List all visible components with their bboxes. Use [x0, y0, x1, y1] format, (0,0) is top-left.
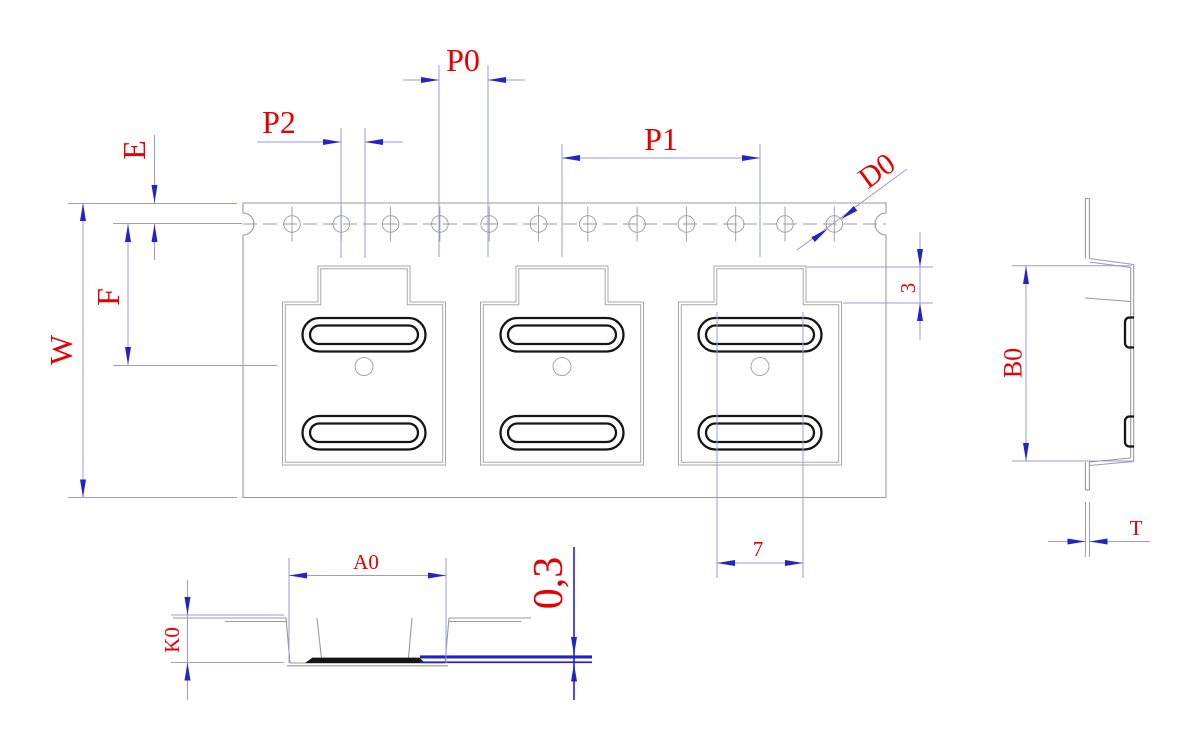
label-p0: P0 — [446, 42, 480, 78]
tape-side-view — [1085, 199, 1134, 491]
label-w: W — [43, 334, 79, 365]
label-a0: A0 — [353, 550, 379, 574]
label-step-3: 3 — [896, 283, 920, 294]
label-t: T — [1130, 516, 1143, 540]
component-in-pocket — [305, 658, 425, 663]
tape-top-view — [243, 203, 886, 498]
pad-bump-profile — [1125, 417, 1134, 447]
dimension-labels: P0 P2 P1 E F W D0 3 7 B0 T A0 K0 0,3 — [43, 42, 1143, 653]
label-p1: P1 — [644, 121, 678, 157]
label-e: E — [116, 140, 152, 160]
label-b0: B0 — [999, 348, 1028, 378]
pocket-section-view — [173, 618, 592, 666]
label-d0: D0 — [852, 147, 901, 195]
carrier-tape-drawing: P0 P2 P1 E F W D0 3 7 B0 T A0 K0 0,3 — [0, 0, 1200, 742]
dimension-lines — [68, 65, 1150, 700]
label-p2: P2 — [262, 104, 296, 140]
carrier-tape-outline — [243, 203, 886, 498]
label-cover-03: 0,3 — [526, 557, 572, 610]
drawing-canvas: P0 P2 P1 E F W D0 3 7 B0 T A0 K0 0,3 — [0, 0, 1200, 742]
component-pocket — [679, 266, 842, 465]
label-pad-7: 7 — [753, 537, 764, 561]
label-k0: K0 — [160, 627, 184, 653]
component-pocket — [283, 266, 446, 465]
component-pocket — [481, 266, 644, 465]
pad-bump-profile — [1125, 318, 1134, 348]
label-f: F — [90, 288, 126, 306]
